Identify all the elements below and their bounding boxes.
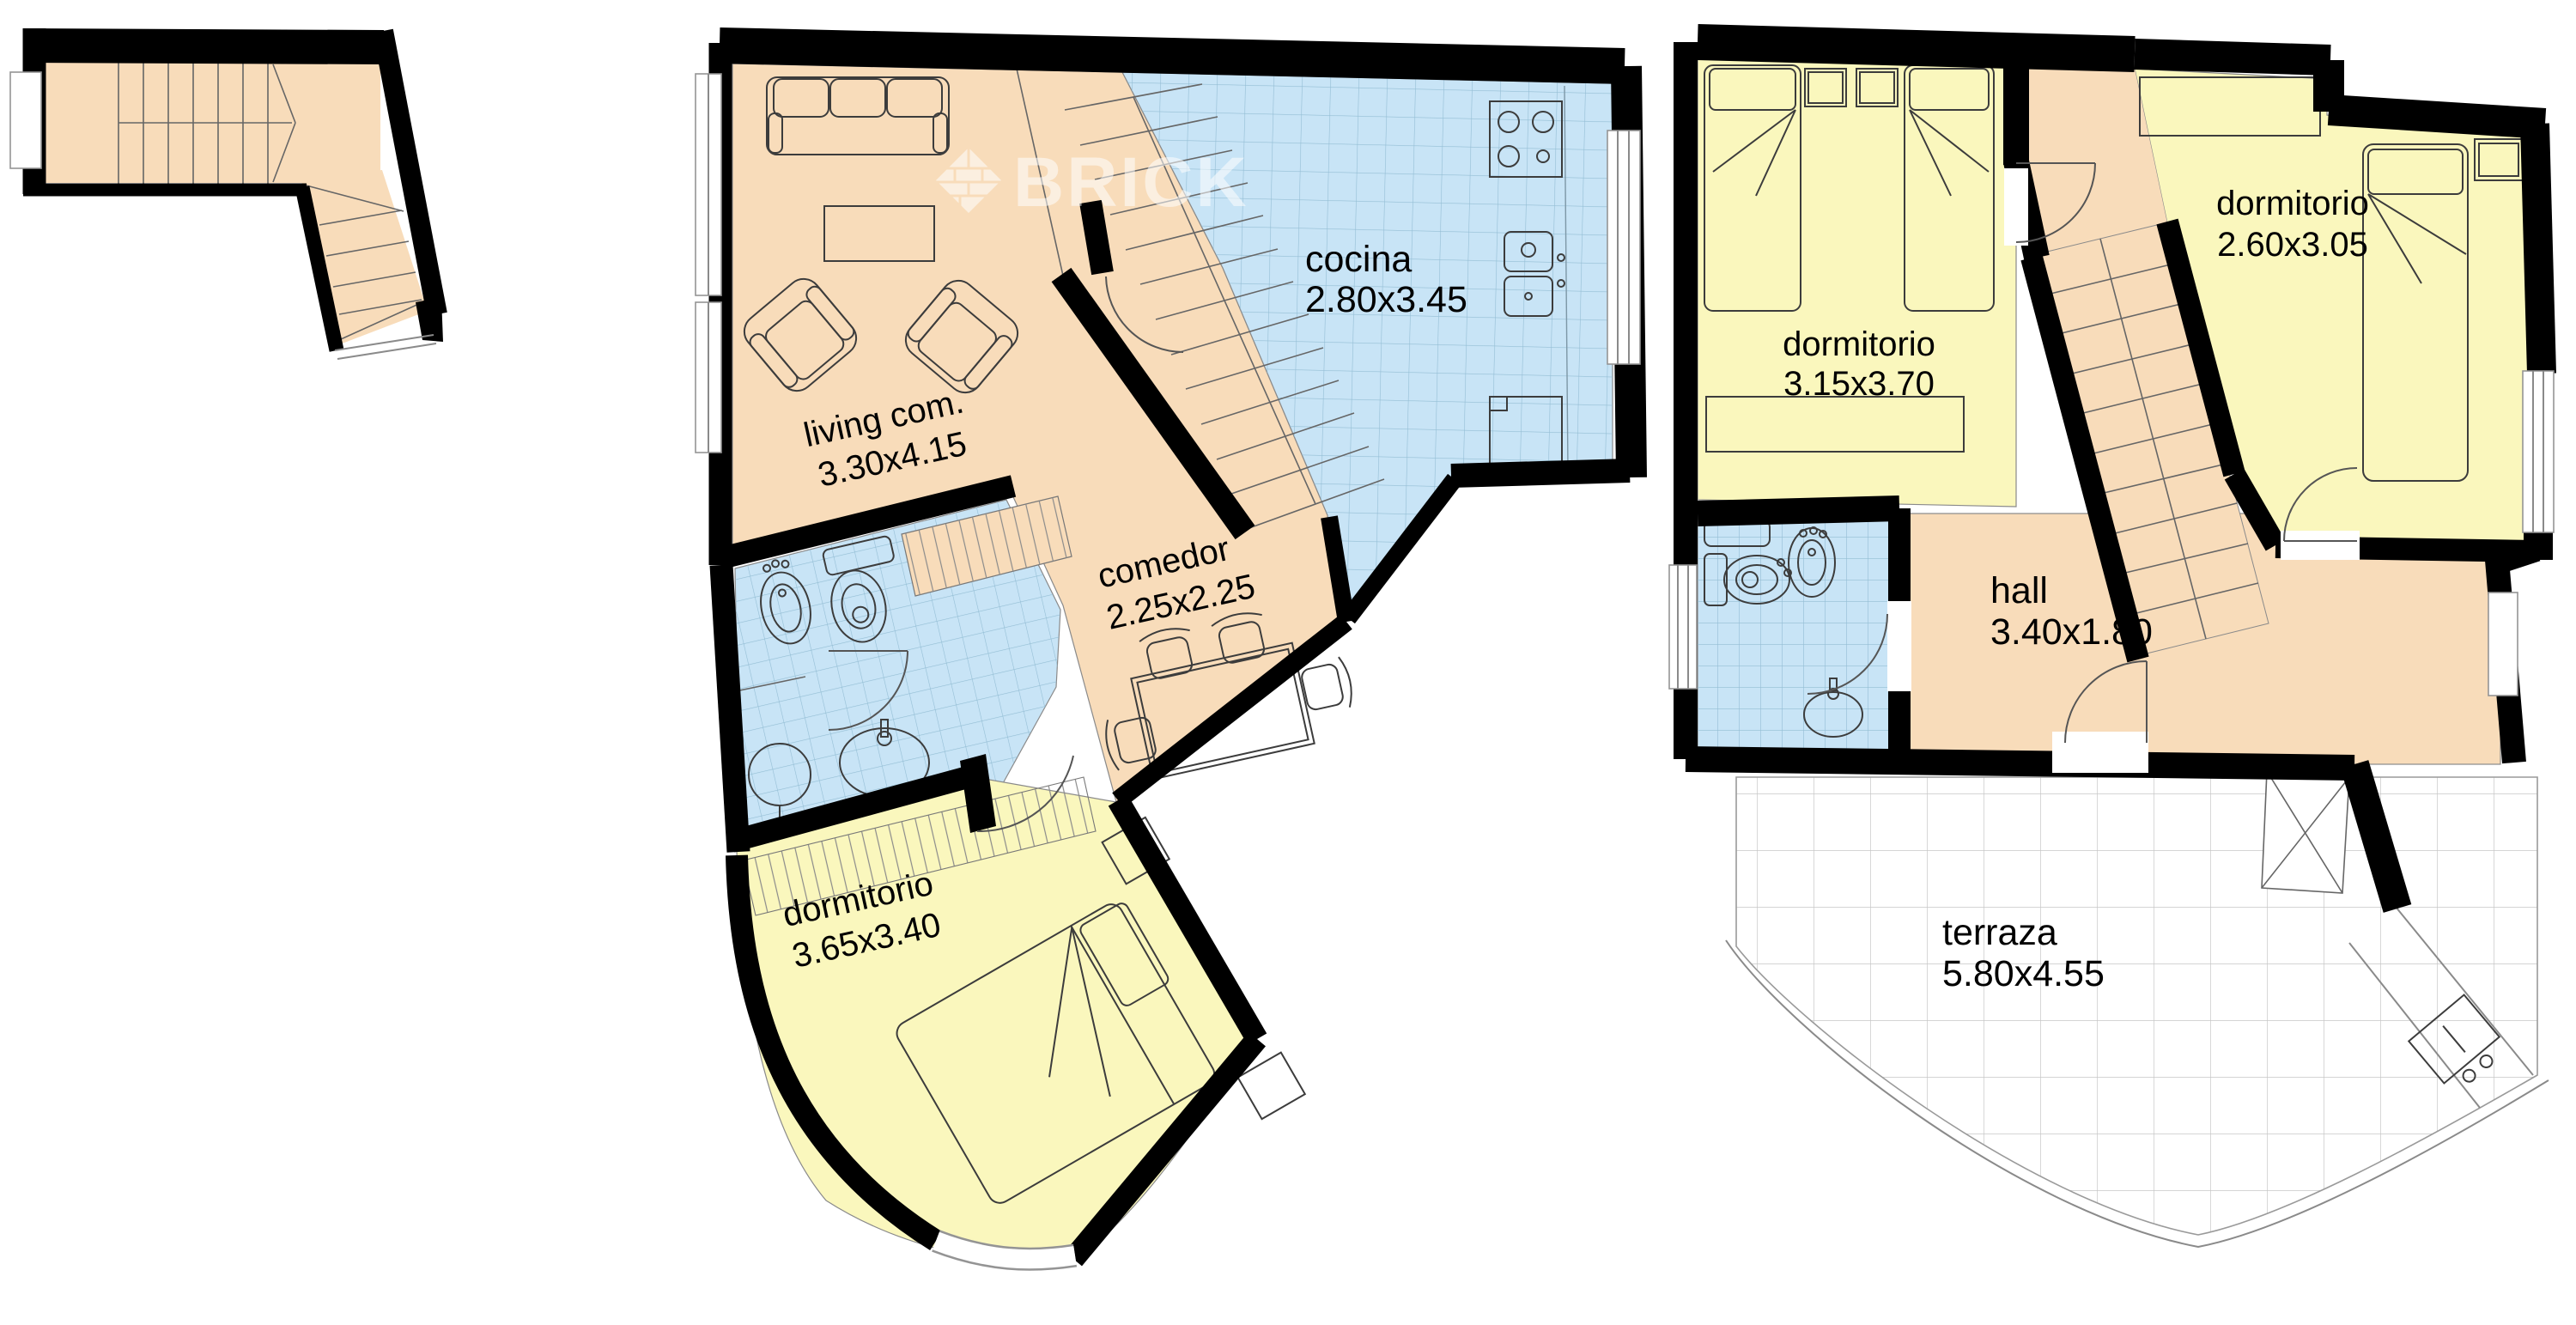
wall [1698, 508, 1899, 514]
room-label: terraza [1942, 912, 2057, 953]
wall [1686, 759, 2354, 768]
doorway-opening [10, 72, 41, 168]
room-dims: 2.80x3.45 [1305, 279, 1467, 320]
room-dims: 3.40x1.80 [1990, 611, 2153, 653]
door-opening [2281, 531, 2360, 560]
watermark-text: BRICK [1013, 143, 1249, 222]
window [2488, 593, 2518, 696]
stairwell-section [10, 28, 443, 359]
room-label: hall [1990, 570, 2048, 611]
chair [1299, 656, 1356, 716]
window [1607, 131, 1640, 364]
room-label: dormitorio [2216, 185, 2369, 222]
door-opening [1887, 601, 1911, 691]
upper-level-plan: dormitorio 3.15x3.70 dormitorio 2.60x3.0… [1669, 42, 2554, 1247]
wall [2135, 54, 2330, 60]
wall [720, 46, 1625, 66]
door-opening [2052, 732, 2148, 773]
terrace-floor [1736, 777, 2537, 1235]
room-dims: 3.15x3.70 [1783, 365, 1935, 403]
door-opening [2004, 168, 2028, 246]
wall [1698, 42, 2135, 54]
floor-plan-sheet: living com. 3.30x4.15 cocina 2.80x3.45 c… [0, 0, 2576, 1325]
main-level-plan: living com. 3.30x4.15 cocina 2.80x3.45 c… [696, 43, 1640, 1262]
wall [2329, 110, 2545, 124]
window [1669, 565, 1697, 689]
room-label: dormitorio [1783, 325, 1935, 363]
floor-plan-drawing: living com. 3.30x4.15 cocina 2.80x3.45 c… [0, 0, 2576, 1325]
room-dims: 5.80x4.55 [1942, 953, 2105, 994]
wall [1451, 471, 1630, 476]
bedroom-twin-floor [1698, 54, 2016, 507]
room-dims: 2.60x3.05 [2217, 226, 2368, 264]
wall [2497, 550, 2537, 562]
wall [23, 46, 384, 47]
wall [2535, 124, 2542, 374]
window [2523, 371, 2554, 532]
room-label: cocina [1305, 239, 1412, 280]
